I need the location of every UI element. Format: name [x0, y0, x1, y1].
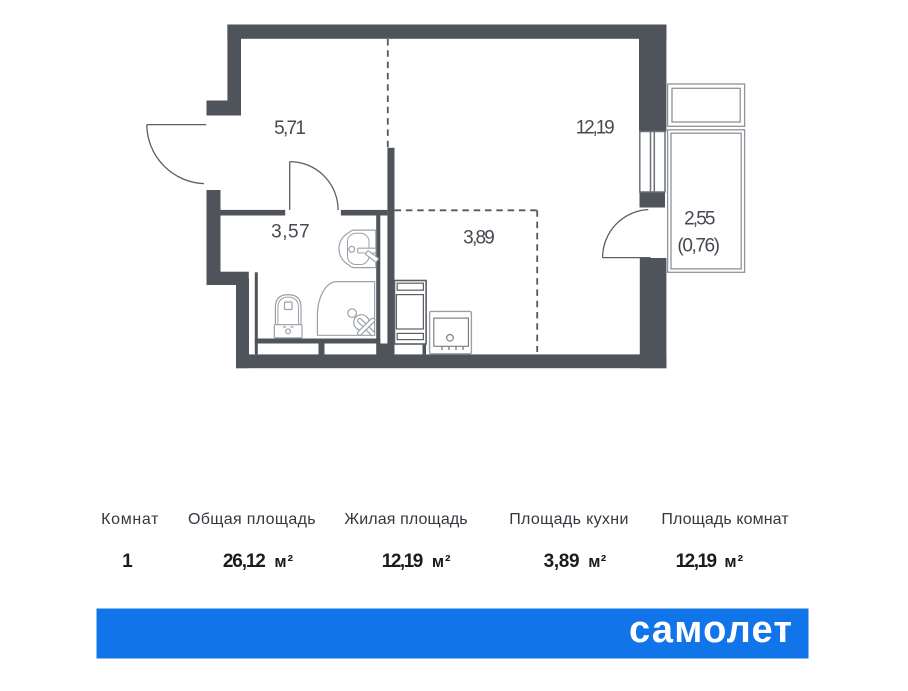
svg-text:5,71: 5,71: [274, 118, 306, 139]
svg-text:м²: м²: [432, 553, 451, 571]
svg-text:Общая площадь: Общая площадь: [188, 511, 316, 528]
svg-text:Площадь кухни: Площадь кухни: [509, 511, 628, 528]
svg-text:3,89: 3,89: [544, 551, 580, 572]
svg-text:1: 1: [122, 551, 133, 572]
svg-text:Жилая площадь: Жилая площадь: [344, 511, 467, 528]
svg-text:26,12: 26,12: [223, 551, 266, 572]
svg-text:Площадь комнат: Площадь комнат: [661, 511, 789, 528]
svg-text:м²: м²: [588, 553, 607, 571]
svg-text:12,19: 12,19: [576, 117, 615, 138]
svg-text:3,57: 3,57: [271, 222, 310, 243]
svg-text:самолет: самолет: [629, 609, 792, 651]
svg-text:м²: м²: [724, 553, 743, 571]
svg-text:3,89: 3,89: [463, 228, 495, 249]
svg-text:м²: м²: [274, 553, 293, 571]
svg-text:2,55: 2,55: [684, 209, 715, 230]
svg-text:12,19: 12,19: [382, 551, 424, 572]
svg-text:12,19: 12,19: [676, 551, 718, 572]
svg-text:Комнат: Комнат: [101, 511, 159, 528]
svg-text:(0,76): (0,76): [677, 236, 720, 257]
